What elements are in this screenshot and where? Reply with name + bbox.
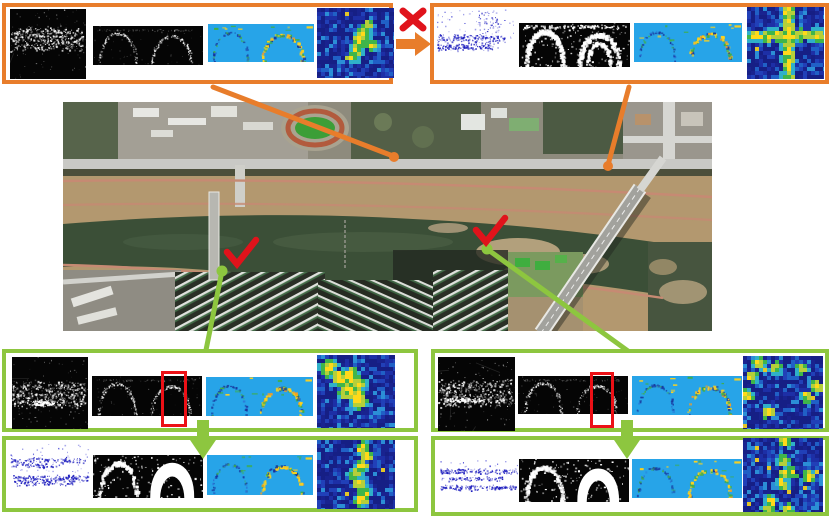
highlight-box-red <box>590 372 614 428</box>
feature-map-image <box>634 23 742 62</box>
correlation-heatmap <box>317 440 395 509</box>
figure-canvas <box>0 0 831 524</box>
feature-map-image <box>632 459 742 498</box>
radar-intensity-image <box>12 357 88 429</box>
radar-intensity-image <box>10 9 86 79</box>
feature-map-image <box>207 455 313 495</box>
lidar-pointcloud-image <box>10 444 90 501</box>
satellite-map-graphic <box>63 102 712 331</box>
correlation-heatmap <box>317 8 394 78</box>
binary-radar-image <box>519 23 630 67</box>
lidar-pointcloud-image <box>440 459 518 502</box>
correlation-heatmap <box>317 355 395 428</box>
radar-intensity-image <box>438 357 515 431</box>
satellite-map <box>63 102 712 331</box>
binary-radar-image <box>93 455 203 498</box>
highlight-box-red <box>161 371 187 427</box>
feature-map-image <box>206 377 313 416</box>
arrow-right-icon <box>396 31 432 57</box>
radar-cartesian-image <box>93 26 203 65</box>
correlation-heatmap <box>743 356 823 429</box>
cross-icon <box>398 7 428 33</box>
correlation-heatmap <box>747 7 824 79</box>
binary-radar-image <box>519 459 629 502</box>
feature-map-image <box>208 24 314 62</box>
feature-map-image <box>632 376 742 415</box>
correlation-heatmap <box>743 438 823 512</box>
lidar-pointcloud-image <box>437 9 514 78</box>
